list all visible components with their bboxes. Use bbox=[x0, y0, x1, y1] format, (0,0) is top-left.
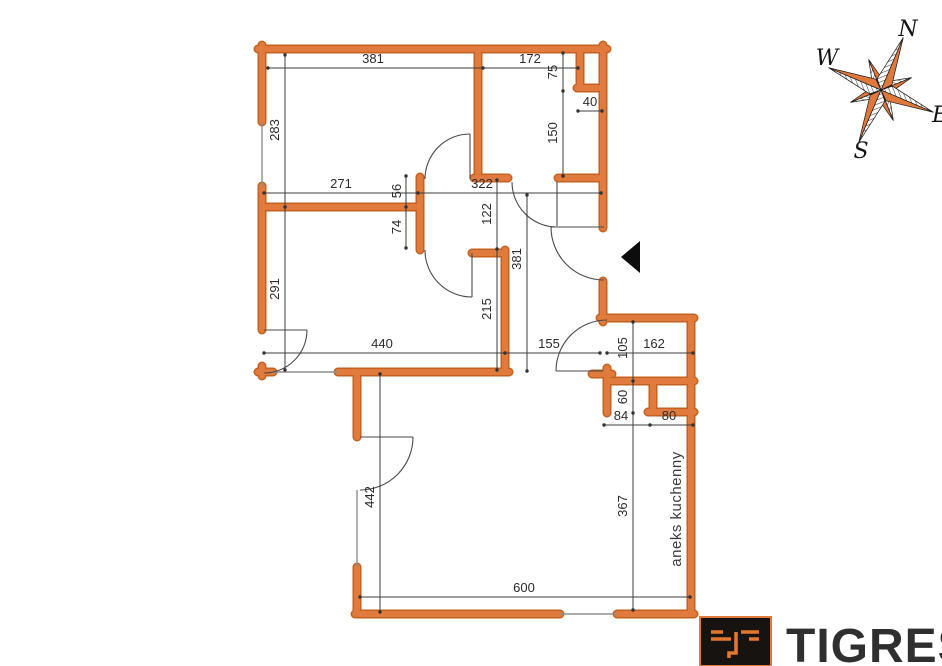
dim-nook-offset: 105 bbox=[615, 337, 630, 359]
dim-closet-right: 80 bbox=[662, 408, 676, 423]
dim-closet-height: 60 bbox=[615, 390, 630, 404]
brand-wordmark: TIGRES bbox=[786, 620, 942, 666]
logo: TIGRES bbox=[700, 617, 942, 666]
door-room2 bbox=[512, 182, 557, 227]
dim-shaft-height: 75 bbox=[545, 65, 560, 79]
floor-plan-canvas: 381 172 75 150 40 271 322 56 74 283 291 … bbox=[0, 0, 942, 666]
dim-nook-height: 367 bbox=[615, 495, 630, 517]
dim-room2-width: 172 bbox=[519, 51, 541, 66]
dim-jamb-lower: 74 bbox=[389, 220, 404, 234]
dim-room2-height: 150 bbox=[545, 122, 560, 144]
dim-room1-width: 381 bbox=[362, 51, 384, 66]
entrance-arrow bbox=[621, 241, 640, 273]
compass-rose: N W S E bbox=[806, 15, 942, 164]
compass-west-label: W bbox=[816, 46, 841, 71]
dim-room1-height: 283 bbox=[267, 119, 282, 141]
door-room3 bbox=[425, 250, 472, 297]
dim-mid-right: 322 bbox=[471, 176, 493, 191]
compass-south-label: S bbox=[853, 139, 868, 164]
dim-jamb-upper: 56 bbox=[389, 184, 404, 198]
dim-hall-mid: 215 bbox=[479, 298, 494, 320]
compass-north-label: N bbox=[897, 17, 918, 42]
dim-hall-height: 381 bbox=[509, 248, 524, 270]
dim-closet-left: 84 bbox=[614, 408, 628, 423]
dim-room3-height: 291 bbox=[267, 278, 282, 300]
door-swings bbox=[264, 134, 607, 490]
dim-room3-width: 440 bbox=[371, 336, 393, 351]
kitchen-annex-label: aneks kuchenny bbox=[668, 451, 685, 566]
dim-living-width: 600 bbox=[513, 580, 535, 595]
walls bbox=[258, 45, 694, 614]
compass-east-label: E bbox=[931, 103, 942, 128]
floor-plan-page: 381 172 75 150 40 271 322 56 74 283 291 … bbox=[0, 0, 942, 666]
dim-shaft-width: 40 bbox=[583, 94, 597, 109]
dim-mid-left: 271 bbox=[330, 176, 352, 191]
wall-fill-layer bbox=[258, 45, 694, 614]
dim-nook-width: 162 bbox=[643, 336, 665, 351]
dim-hall-width: 155 bbox=[538, 336, 560, 351]
dim-hall-upper: 122 bbox=[479, 203, 494, 225]
dim-living-height: 442 bbox=[362, 486, 377, 508]
dimension-labels: 381 172 75 150 40 271 322 56 74 283 291 … bbox=[267, 51, 676, 595]
door-living-room bbox=[360, 437, 413, 490]
door-kitchen bbox=[556, 320, 607, 371]
door-entrance bbox=[551, 227, 604, 280]
door-room1 bbox=[425, 134, 470, 179]
